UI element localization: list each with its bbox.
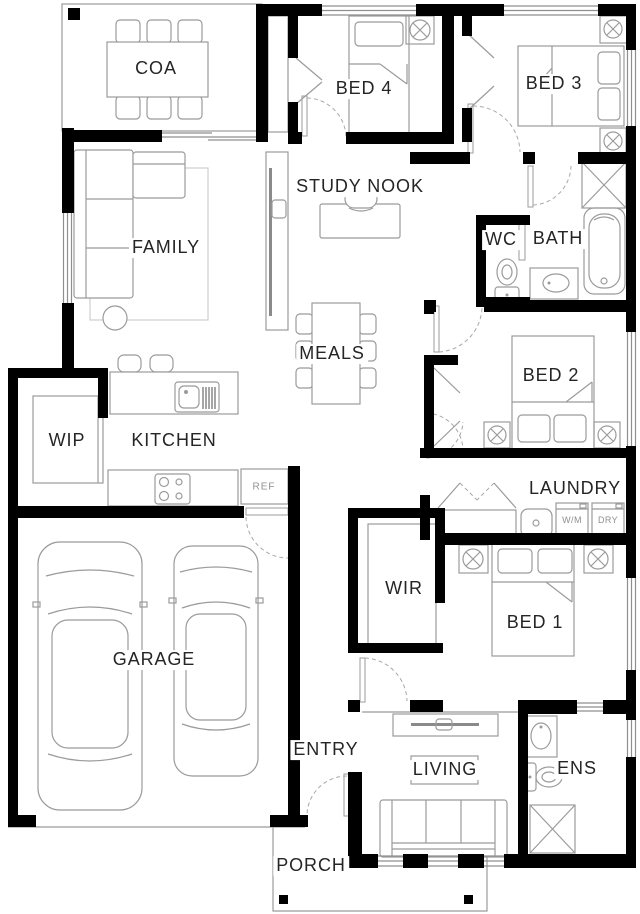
room-label-ens: ENS (554, 759, 600, 779)
bed2-window (628, 332, 636, 446)
bed4-lamp-icon (406, 16, 434, 44)
bed4-door-leaf (302, 96, 307, 136)
bed1-bed (492, 543, 574, 656)
bed1-window (628, 578, 636, 670)
room-label-laundry: LAUNDRY (526, 479, 624, 499)
room-label-wir: WIR (382, 579, 426, 599)
fridge-label: REF (250, 482, 279, 493)
living-sofa (380, 800, 507, 857)
washer-label: W/M (562, 516, 582, 526)
tv-screen (411, 723, 479, 726)
room-label-entry: ENTRY (290, 740, 361, 760)
ens-vanity-basin-icon (526, 716, 557, 757)
bed3-lamp-icon (600, 16, 627, 43)
bed3-window-top (504, 6, 598, 15)
room-label-alfresco: COA (132, 59, 180, 79)
bath-door-swing (533, 166, 571, 205)
alfresco-post (68, 8, 80, 20)
laundry-tub-icon (521, 509, 552, 537)
room-label-meals: MEALS (296, 344, 368, 364)
bed2-robe-doors (434, 368, 460, 446)
bed3-lamp-icon-2 (600, 128, 626, 154)
wc-toilet-icon (495, 259, 519, 303)
room-label-wip: WIP (46, 431, 89, 451)
garage-car-left (33, 542, 147, 810)
bed2-lamp-icon (484, 422, 510, 448)
room-label-garage: GARAGE (110, 650, 198, 670)
bed2-door-leaf (434, 306, 439, 352)
study-desk (320, 190, 400, 238)
bed4-robe-doors (296, 58, 322, 104)
front-door-swing (307, 776, 347, 815)
bed1-lamp-icon (459, 545, 488, 573)
kitchen-bench (108, 470, 238, 506)
stool (118, 355, 141, 372)
living-tv-unit (393, 714, 498, 736)
room-label-kitchen: KITCHEN (128, 431, 219, 451)
dryer-label: DRY (598, 516, 618, 526)
garage-door-swing (246, 517, 288, 558)
room-label-bed4: BED 4 (333, 79, 396, 99)
garage-door-leaf (246, 508, 288, 515)
bed4-robe-cavity (268, 16, 288, 132)
ens-shower-icon (530, 805, 575, 853)
room-label-living: LIVING (410, 760, 480, 780)
bed4-window (322, 6, 416, 15)
tv-screen (269, 168, 272, 316)
room-label-bath: BATH (530, 229, 586, 249)
furniture-layer (33, 16, 627, 904)
room-label-family: FAMILY (129, 238, 203, 258)
room-label-bed1: BED 1 (504, 613, 567, 633)
room-label-study-nook: STUDY NOOK (293, 177, 427, 197)
family-tv-unit (266, 152, 288, 330)
kitchen-island (110, 355, 238, 414)
bed2-door-swing (439, 307, 482, 352)
bed1-lamp-icon-2 (584, 545, 613, 573)
ens-window (628, 720, 636, 757)
bath-vanity-basin-icon (530, 268, 578, 299)
bath-shower-icon (582, 162, 626, 208)
suite-door-leaf (360, 658, 365, 702)
family-window (64, 213, 72, 303)
bed3-window-side (628, 50, 636, 126)
porch-post (464, 895, 473, 904)
porch-post (279, 895, 288, 904)
suite-door-swing (365, 658, 407, 701)
linen-door-leaves (438, 483, 516, 508)
linen-door-swing (460, 483, 494, 500)
bed3-door-swing (473, 106, 520, 152)
bed2-lamp-icon-2 (594, 422, 620, 448)
bed4-door-swing (307, 98, 346, 137)
bed2-bed (512, 336, 594, 449)
bathtub-icon (584, 208, 625, 294)
floor-plan: COA BED 4 BED 3 STUDY NOOK FAMILY WC BAT… (0, 0, 640, 914)
floor-plan-drawing (0, 0, 640, 914)
cooktop-icon (155, 474, 190, 504)
alfresco-slider-door (162, 133, 258, 140)
ens-slider-door (577, 703, 603, 711)
room-label-porch: PORCH (273, 856, 349, 876)
room-label-bed2: BED 2 (520, 366, 583, 386)
bed3-robe-doors (468, 34, 494, 110)
ottoman (103, 306, 127, 330)
room-label-wc: WC (482, 230, 520, 250)
stool (150, 355, 173, 372)
bath-door-leaf (528, 166, 533, 207)
room-label-bed3: BED 3 (523, 74, 586, 94)
